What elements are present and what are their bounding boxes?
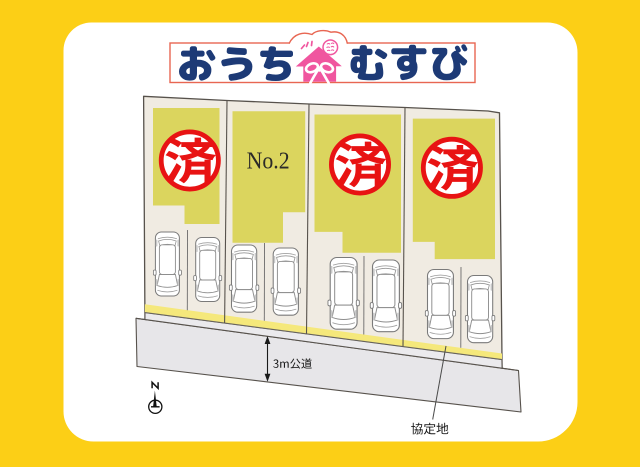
svg-text:No.2: No.2	[247, 147, 290, 175]
